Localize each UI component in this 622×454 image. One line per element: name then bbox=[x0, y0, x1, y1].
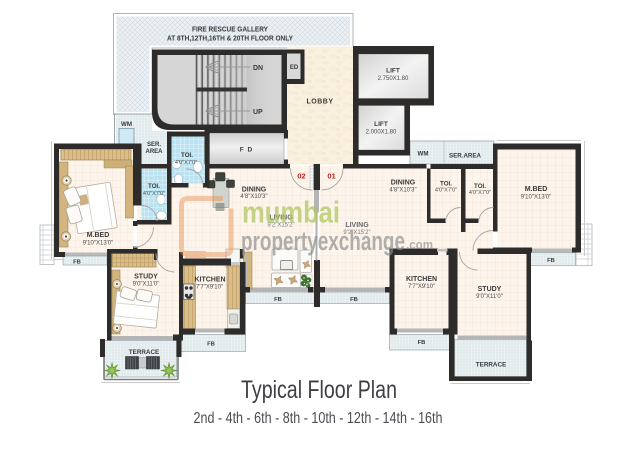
svg-text:FIRE RESCUE GALLERY: FIRE RESCUE GALLERY bbox=[192, 27, 268, 34]
svg-text:ED: ED bbox=[290, 65, 299, 71]
svg-text:02: 02 bbox=[297, 172, 305, 181]
svg-text:9'0"X11'0": 9'0"X11'0" bbox=[133, 282, 160, 288]
svg-text:9'0"X11'0": 9'0"X11'0" bbox=[476, 294, 503, 300]
svg-text:KITCHEN: KITCHEN bbox=[194, 277, 225, 284]
svg-text:9'10"X13'0": 9'10"X13'0" bbox=[83, 241, 114, 247]
svg-text:01: 01 bbox=[327, 172, 335, 181]
svg-text:UP: UP bbox=[253, 109, 263, 116]
svg-text:SER.: SER. bbox=[147, 142, 161, 148]
svg-text:M.BED: M.BED bbox=[525, 186, 548, 193]
svg-text:2nd - 4th - 6th - 8th - 10th -: 2nd - 4th - 6th - 8th - 10th - 12th - 14… bbox=[194, 410, 443, 427]
svg-text:Typical Floor Plan: Typical Floor Plan bbox=[241, 376, 397, 404]
svg-text:DN: DN bbox=[253, 65, 263, 72]
svg-text:KITCHEN: KITCHEN bbox=[406, 276, 437, 283]
svg-text:FB: FB bbox=[274, 297, 282, 303]
svg-text:TOI.: TOI. bbox=[148, 183, 160, 190]
svg-text:propertyexchange: propertyexchange bbox=[241, 226, 405, 256]
svg-text:4'0"X7'0": 4'0"X7'0" bbox=[175, 160, 197, 166]
svg-text:2.000X1.80: 2.000X1.80 bbox=[366, 130, 397, 136]
svg-text:AT 8TH,12TH,16TH & 20TH FLOOR: AT 8TH,12TH,16TH & 20TH FLOOR ONLY bbox=[167, 36, 293, 43]
svg-text:4'0"X7'0": 4'0"X7'0" bbox=[469, 190, 491, 196]
svg-text:4'0"X7'0": 4'0"X7'0" bbox=[143, 191, 165, 197]
svg-text:LIFT: LIFT bbox=[374, 121, 388, 128]
svg-text:FB: FB bbox=[350, 297, 358, 303]
svg-text:7'7"X9'10": 7'7"X9'10" bbox=[196, 285, 223, 291]
svg-text:TOI.: TOI. bbox=[474, 183, 486, 190]
svg-text:FB: FB bbox=[73, 260, 81, 266]
svg-text:AREA: AREA bbox=[145, 149, 163, 155]
svg-text:TOI.: TOI. bbox=[181, 152, 193, 159]
svg-text:mumbai: mumbai bbox=[242, 195, 340, 230]
svg-text:DINING: DINING bbox=[391, 180, 416, 187]
svg-text:9'10"X13'0": 9'10"X13'0" bbox=[521, 195, 552, 201]
svg-text:4'0"X7'0": 4'0"X7'0" bbox=[435, 188, 457, 194]
svg-text:WM: WM bbox=[121, 121, 132, 128]
svg-text:.com: .com bbox=[406, 237, 433, 252]
svg-text:WM: WM bbox=[418, 151, 429, 158]
svg-text:M.BED: M.BED bbox=[87, 232, 110, 239]
svg-text:STUDY: STUDY bbox=[478, 286, 502, 293]
svg-text:FB: FB bbox=[547, 258, 555, 264]
svg-text:FB: FB bbox=[207, 342, 215, 348]
svg-text:TERRACE: TERRACE bbox=[476, 362, 506, 369]
svg-text:FB: FB bbox=[418, 340, 426, 346]
svg-text:LOBBY: LOBBY bbox=[307, 99, 334, 106]
svg-text:4'8"X10'3": 4'8"X10'3" bbox=[389, 188, 416, 194]
svg-text:TOI.: TOI. bbox=[440, 181, 452, 188]
svg-text:F D: F D bbox=[240, 147, 253, 154]
svg-text:STUDY: STUDY bbox=[134, 274, 158, 281]
svg-text:7'7"X9'10": 7'7"X9'10" bbox=[408, 284, 435, 290]
svg-text:LIFT: LIFT bbox=[386, 68, 400, 75]
svg-text:2.750X1.80: 2.750X1.80 bbox=[378, 76, 409, 82]
svg-text:SER.AREA: SER.AREA bbox=[449, 153, 482, 160]
svg-text:TERRACE: TERRACE bbox=[129, 349, 159, 356]
svg-text:DINING: DINING bbox=[242, 187, 267, 194]
